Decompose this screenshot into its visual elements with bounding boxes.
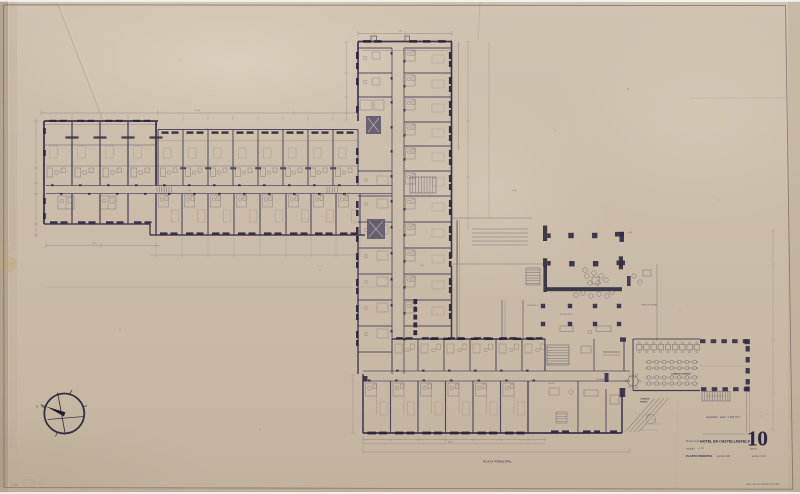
svg-text:escala 1:100: escala 1:100 xyxy=(717,456,731,458)
svg-text:PLAZA PRINCIPAL: PLAZA PRINCIPAL xyxy=(483,460,512,464)
svg-text:COMEDOR: COMEDOR xyxy=(640,399,650,401)
svg-text:arqt. Asensio Bofarull y Bta: arqt. Asensio Bofarull y Bta xyxy=(746,482,780,486)
svg-text:PLANTA PRINCIPAL: PLANTA PRINCIPAL xyxy=(686,454,713,458)
svg-text:Proyecto de: Proyecto de xyxy=(686,440,700,443)
svg-text:a 4,00: a 4,00 xyxy=(512,190,517,192)
svg-text:2: 2 xyxy=(761,416,762,418)
svg-text:Superficie : total = 1.305,: Superficie : total = 1.305,78 m xyxy=(706,415,741,419)
svg-text:hoja nº: hoja nº xyxy=(750,447,758,451)
svg-text:a 4,00: a 4,00 xyxy=(186,190,191,192)
svg-text:+ 4,50: + 4,50 xyxy=(627,232,632,234)
svg-text:HOTEL EN CASTELLDEFELS: HOTEL EN CASTELLDEFELS xyxy=(700,440,750,444)
svg-text:RECEPCION: RECEPCION xyxy=(560,314,572,316)
svg-text:31,10: 31,10 xyxy=(195,110,201,112)
svg-text:6,00: 6,00 xyxy=(420,265,424,267)
svg-text:48,50: 48,50 xyxy=(448,442,453,444)
svg-text:VESTIBULO: VESTIBULO xyxy=(527,305,539,307)
svg-text:encargo: encargo xyxy=(686,448,695,451)
svg-text:OFICIO: OFICIO xyxy=(548,383,555,385)
svg-text:COMEDOR INVIERNO: COMEDOR INVIERNO xyxy=(671,374,691,376)
svg-text:SALA DE ESTAR: SALA DE ESTAR xyxy=(641,304,658,307)
svg-text:21,10: 21,10 xyxy=(92,243,97,245)
svg-text:nº 771: nº 771 xyxy=(698,447,705,450)
svg-text:COCINA: COCINA xyxy=(596,378,604,381)
svg-text:R.G. 1124: R.G. 1124 xyxy=(36,484,44,486)
svg-text:VERANO: VERANO xyxy=(640,400,648,403)
svg-text:4-88: 4-88 xyxy=(11,483,18,487)
